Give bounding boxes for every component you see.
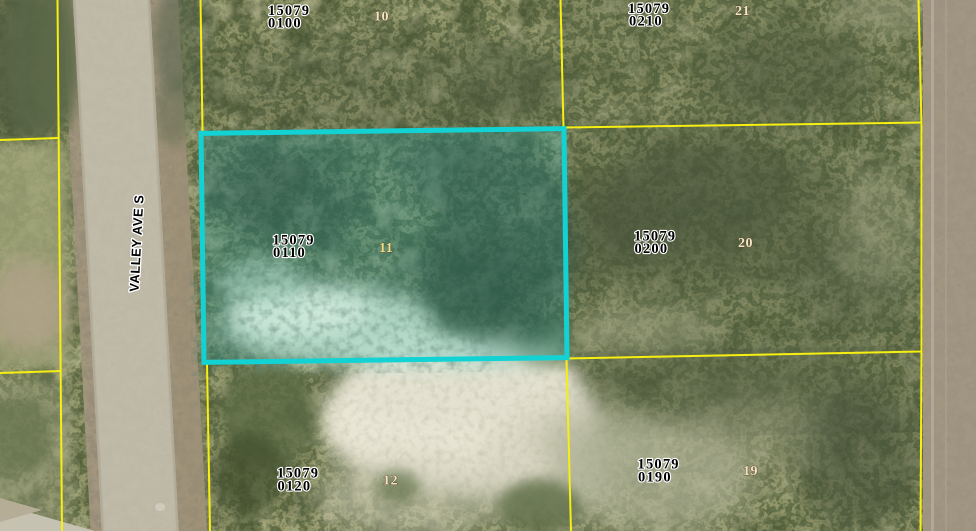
svg-text:0100: 0100: [268, 16, 302, 32]
svg-text:19: 19: [743, 464, 758, 479]
svg-text:12: 12: [383, 474, 398, 489]
svg-text:11: 11: [379, 241, 393, 256]
svg-text:0210: 0210: [629, 14, 663, 30]
svg-text:21: 21: [735, 4, 750, 19]
svg-text:0120: 0120: [278, 479, 312, 495]
svg-text:20: 20: [738, 236, 753, 251]
svg-text:0190: 0190: [638, 470, 672, 486]
svg-text:10: 10: [374, 10, 389, 25]
svg-text:0200: 0200: [635, 241, 669, 257]
svg-text:0110: 0110: [273, 245, 306, 261]
